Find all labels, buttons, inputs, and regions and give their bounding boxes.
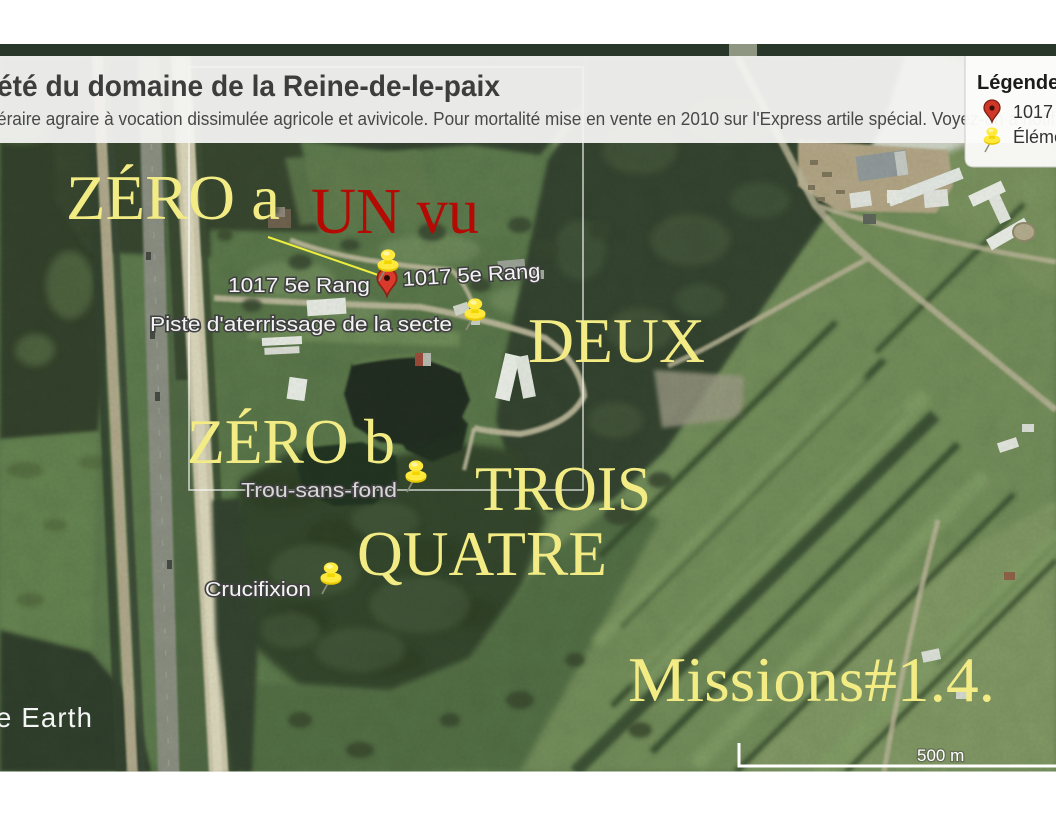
svg-text:Trou-sans-fond: Trou-sans-fond [241, 479, 397, 502]
svg-text:500 m: 500 m [917, 746, 964, 765]
svg-text:ZÉRO b: ZÉRO b [187, 407, 395, 477]
svg-text:QUATRE: QUATRE [357, 519, 607, 589]
svg-text:éraire agraire à vocation diss: éraire agraire à vocation dissimulée agr… [0, 108, 1056, 129]
svg-text:1017 5e Rang: 1017 5e Rang [228, 274, 370, 297]
svg-text:Piste d'aterrissage de la sect: Piste d'aterrissage de la secte [150, 313, 452, 336]
svg-text:Crucifixion: Crucifixion [205, 578, 311, 601]
svg-text:ZÉRO a: ZÉRO a [66, 163, 280, 233]
svg-text:1017 5: 1017 5 [1013, 102, 1056, 122]
svg-text:e Earth: e Earth [0, 702, 93, 733]
svg-text:TROIS: TROIS [475, 454, 651, 524]
svg-text:UN vu: UN vu [311, 175, 479, 248]
svg-text:Élémen: Élémen [1013, 127, 1056, 147]
svg-text:été du domaine de la Reine-de-: été du domaine de la Reine-de-le-paix [0, 70, 500, 103]
svg-text:Missions#1.4.: Missions#1.4. [628, 645, 995, 715]
svg-text:DEUX: DEUX [528, 306, 705, 376]
svg-text:Légendes: Légendes [977, 72, 1056, 94]
